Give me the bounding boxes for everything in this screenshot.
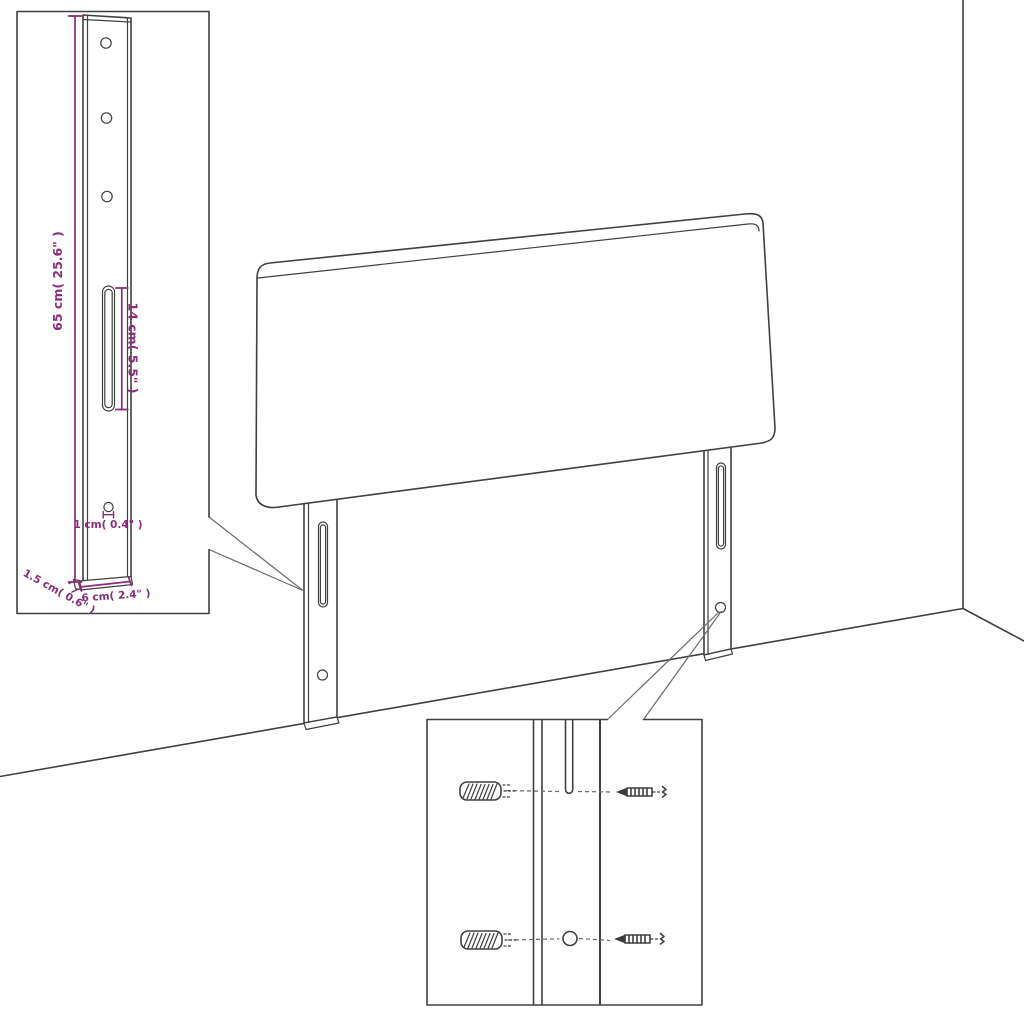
dim-height-label: 65 cm( 25.6" ) [50,231,65,331]
dim-hole-label: 1 cm( 0.4" ) [73,519,142,531]
dim-height-line [69,16,82,582]
bracket-hole-3 [102,191,112,201]
bracket-bottom-hole [104,502,113,511]
dim-width-label: 6 cm( 2.4" ) [81,588,151,605]
bracket-outline [83,15,131,583]
dim-slot-label: 14 cm( 5.5" ) [126,303,141,394]
left-leg [304,497,339,730]
headboard-panel [256,214,775,508]
diagram-canvas: 65 cm( 25.6" ) 14 cm( 5.5" ) 1 cm( 0.4" … [0,0,1024,1024]
bracket-drawing [74,15,133,590]
mount-detail-inset [427,720,702,1006]
bracket-hole-2 [101,113,111,123]
bracket-hole-1 [101,38,111,48]
detail-hole [563,932,577,946]
part-detail-callout-lines [209,517,303,591]
floor-line-right [963,609,1024,642]
right-leg-hole [716,603,726,613]
left-leg-hole [318,670,328,680]
part-detail-inset: 65 cm( 25.6" ) 14 cm( 5.5" ) 1 cm( 0.4" … [17,12,209,617]
